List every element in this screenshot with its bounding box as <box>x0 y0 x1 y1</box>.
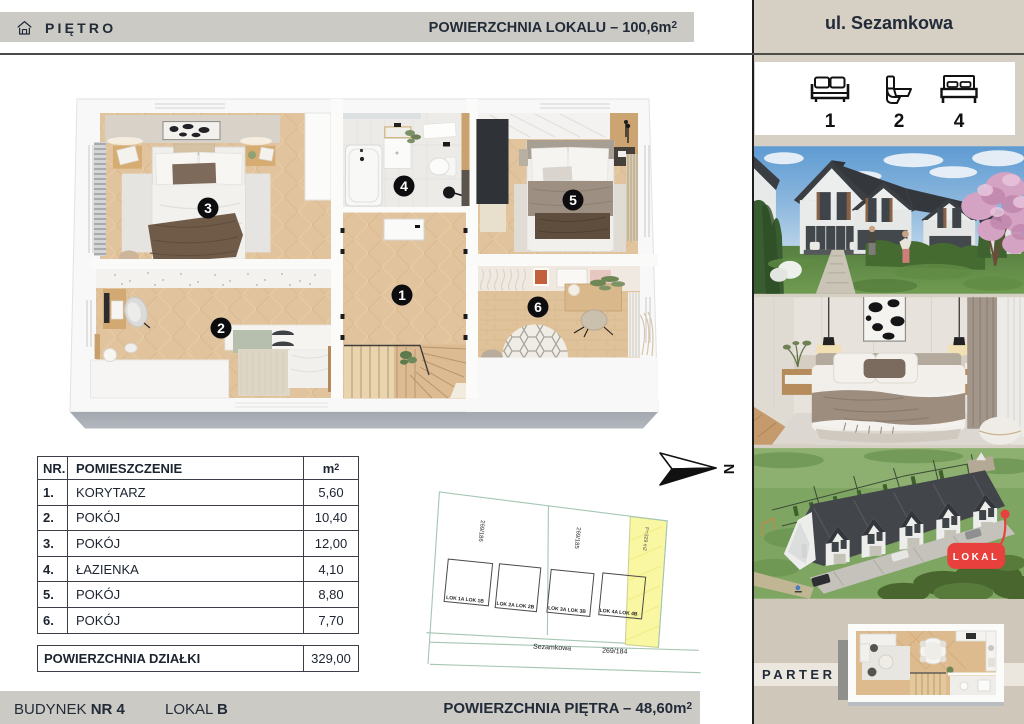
svg-text:269/185: 269/185 <box>573 527 581 550</box>
svg-text:LOKAL: LOKAL <box>953 552 1000 563</box>
svg-text:269/186: 269/186 <box>477 520 485 543</box>
svg-text:269/184: 269/184 <box>602 648 628 656</box>
svg-text:5: 5 <box>569 192 577 208</box>
svg-text:3: 3 <box>204 200 212 216</box>
svg-text:6: 6 <box>534 299 542 315</box>
svg-text:4: 4 <box>400 178 408 194</box>
svg-text:N: N <box>720 464 736 474</box>
svg-text:1: 1 <box>398 287 406 303</box>
svg-text:2: 2 <box>217 320 225 336</box>
svg-text:Sezamkowa: Sezamkowa <box>533 644 572 653</box>
